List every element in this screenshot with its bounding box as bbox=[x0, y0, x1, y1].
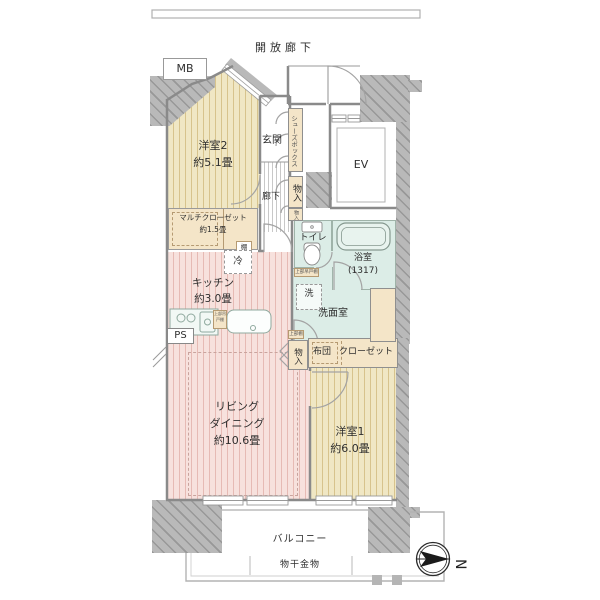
hallway-label: 廊下 bbox=[252, 191, 290, 205]
kitchen-door bbox=[264, 224, 292, 252]
ps-label: PS bbox=[174, 330, 186, 341]
multi-closet-size: 約1.5畳 bbox=[168, 224, 258, 236]
storage-living-label: 物入 bbox=[293, 344, 302, 368]
bedroom2-size: 約5.1畳 bbox=[167, 155, 259, 172]
washroom-label: 洗面室 bbox=[294, 306, 372, 321]
bedroom1-label: 洋室1 約6.0畳 bbox=[304, 424, 396, 457]
bathroom-label: 浴室 (1317) bbox=[332, 252, 394, 277]
ev-label: EV bbox=[330, 157, 392, 174]
laundry-hardware-label: 物干金物 bbox=[258, 559, 342, 573]
bathroom-size: (1317) bbox=[332, 265, 394, 278]
ps-box: PS bbox=[167, 328, 194, 344]
mb-box: MB bbox=[163, 58, 207, 80]
bedroom1-size: 約6.0畳 bbox=[304, 441, 396, 458]
mb-label: MB bbox=[176, 62, 193, 75]
kitchen-name: キッチン bbox=[168, 276, 258, 292]
refrigerator-label: 冷 bbox=[224, 255, 252, 269]
upper-shelf-label: 上部棚 bbox=[289, 332, 303, 337]
bathroom-name: 浴室 bbox=[332, 252, 394, 265]
floorplan: N 棚 MB PS 上部吊戸棚 上部吊戸棚 上部棚 開放廊下 洋室2 約5.1畳… bbox=[0, 0, 600, 600]
bedroom1-door bbox=[312, 372, 348, 408]
balcony-label: バルコニー bbox=[260, 532, 340, 547]
bedroom2-label: 洋室2 約5.1畳 bbox=[167, 138, 259, 171]
storage-entry-2-label: 物入 bbox=[293, 209, 298, 221]
compass-icon: N bbox=[416, 543, 468, 576]
vanity-counter bbox=[370, 288, 396, 342]
balcony-outline bbox=[186, 512, 444, 585]
toilet-label: トイレ bbox=[294, 232, 332, 246]
multi-closet-name: マルチクローゼット bbox=[168, 212, 258, 224]
upper-cabinet-wash-box: 上部吊戸棚 bbox=[294, 268, 319, 277]
bathtub-icon bbox=[337, 223, 390, 250]
multi-closet-label: マルチクローゼット 約1.5畳 bbox=[168, 212, 258, 236]
bedroom2-name: 洋室2 bbox=[167, 138, 259, 155]
bedroom1-name: 洋室1 bbox=[304, 424, 396, 441]
corridor-railing bbox=[152, 10, 420, 18]
living-line2: ダイニング bbox=[182, 415, 292, 432]
storage-living-folding-door bbox=[280, 343, 288, 367]
futon-label: 布団 bbox=[309, 346, 335, 360]
storage-entry-1-label: 物入 bbox=[291, 180, 300, 206]
upper-shelf-box: 上部棚 bbox=[288, 330, 304, 339]
shoes-box-label: シューズボックス bbox=[290, 111, 297, 171]
entrance-label: 玄関 bbox=[250, 133, 294, 148]
living-label: リビング ダイニング 約10.6畳 bbox=[182, 398, 292, 449]
living-line1: リビング bbox=[182, 398, 292, 415]
upper-cabinet-wash-label: 上部吊戸棚 bbox=[295, 270, 318, 275]
diagonal-wall bbox=[222, 58, 277, 106]
kitchen-size: 約3.0畳 bbox=[168, 292, 258, 308]
open-corridor-label: 開放廊下 bbox=[150, 40, 420, 57]
upper-cabinet-kitchen-box: 上部吊戸棚 bbox=[213, 310, 227, 329]
sink-icon bbox=[227, 310, 271, 333]
washer-label: 洗 bbox=[296, 288, 322, 302]
closet-label: クローゼット bbox=[336, 346, 396, 360]
upper-cabinet-kitchen-label: 上部吊戸棚 bbox=[214, 311, 226, 322]
living-size: 約10.6畳 bbox=[182, 432, 292, 449]
front-door bbox=[328, 66, 366, 104]
north-label: N bbox=[452, 559, 468, 569]
kitchen-label: キッチン 約3.0畳 bbox=[168, 276, 258, 308]
